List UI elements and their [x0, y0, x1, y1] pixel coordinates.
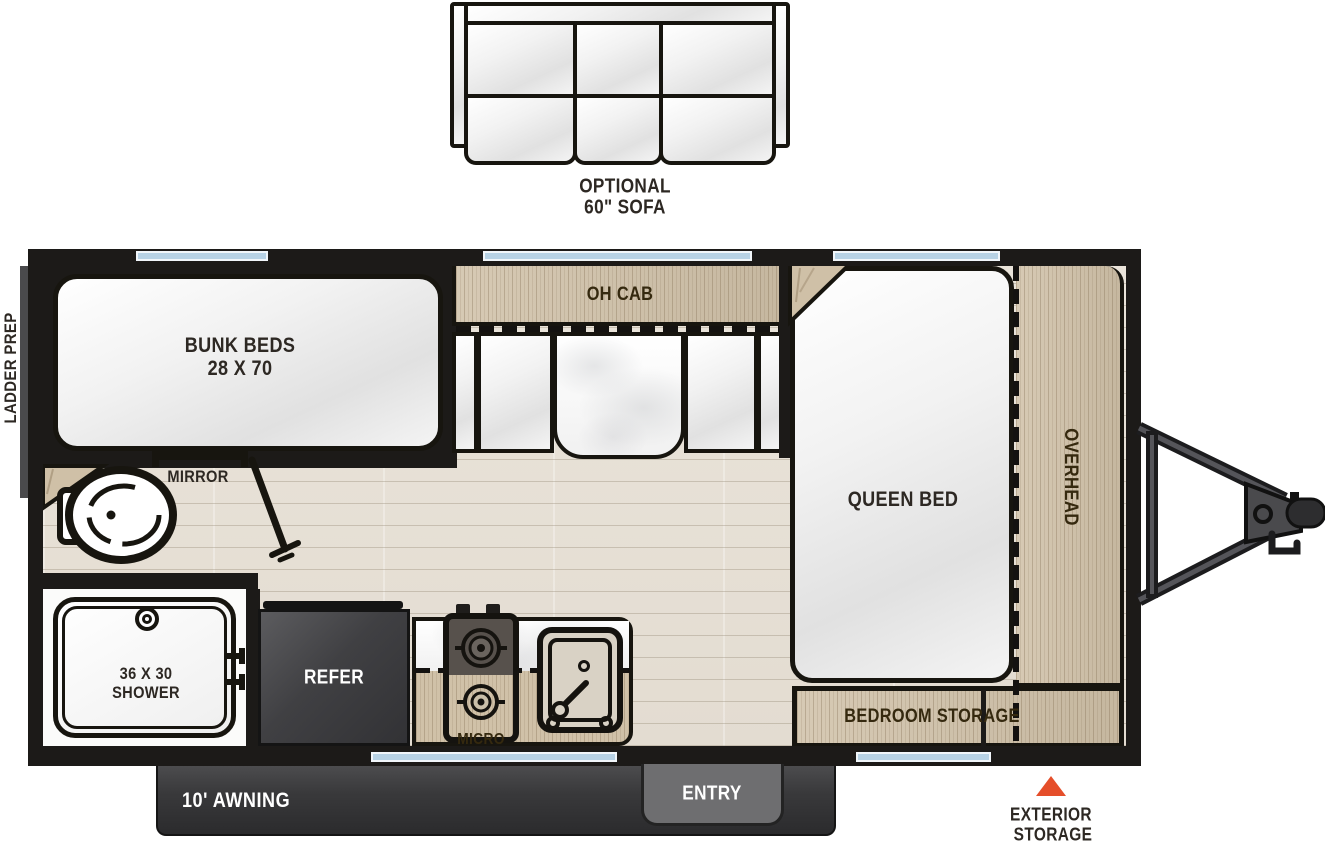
overhead-label: OVERHEAD: [1059, 428, 1081, 526]
bedroom-storage-label: BEDROOM STORAGE: [844, 706, 1020, 728]
queen-bed-label: QUEEN BED: [848, 488, 958, 512]
sofa: [450, 2, 790, 165]
bed-corner-shelf: [788, 262, 854, 326]
ladder-prep-label: LADDER PREP: [1, 312, 21, 423]
exterior-storage-label-line1: EXTERIOR: [1010, 805, 1092, 826]
bed-slide-dashline: [1013, 266, 1019, 746]
sofa-back-cushion: [573, 21, 663, 98]
hitch-frame: [1135, 395, 1325, 610]
mirror-label: MIRROR: [167, 467, 228, 487]
bunk-label-line1: BUNK BEDS: [185, 334, 295, 358]
window: [833, 251, 1000, 261]
toilet-icon: [55, 462, 180, 567]
sofa-back-cushion: [659, 21, 776, 98]
mirror-bar: [152, 450, 248, 460]
sofa-label-line1: OPTIONAL: [579, 176, 671, 199]
floorplan-canvas: LADDER PREP OPTIONAL 60" SOFA BUNK BEDS …: [0, 0, 1325, 845]
exterior-storage-label-line2: STORAGE: [1014, 825, 1093, 845]
dinette-table: [553, 332, 685, 459]
shower-faucet-icon: [222, 646, 258, 694]
exterior-storage-marker: [1034, 774, 1068, 798]
dinette-bench-seat: [477, 332, 554, 453]
sofa-seat-cushion: [659, 94, 776, 165]
bunk-label-line2: 28 X 70: [208, 357, 273, 381]
shower-drain-icon: [132, 604, 162, 634]
entry-label: ENTRY: [682, 783, 741, 806]
bathroom-wall: [43, 573, 258, 589]
dinette-bench-back: [452, 332, 478, 453]
sink-icon: [536, 626, 626, 736]
wall-left: [28, 249, 43, 766]
queen-bed: [790, 266, 1014, 683]
sofa-seat-cushion: [464, 94, 577, 165]
bathroom-door: [240, 452, 310, 564]
sofa-label-line2: 60" SOFA: [584, 197, 666, 220]
window: [136, 251, 268, 261]
awning-label: 10' AWNING: [182, 789, 290, 813]
refer-label: REFER: [304, 667, 364, 690]
sofa-back-cushion: [464, 21, 577, 98]
oh-cab-label: OH CAB: [587, 284, 654, 306]
micro-label: MICRO: [457, 731, 505, 749]
window: [483, 251, 752, 261]
shower-label-line2: SHOWER: [112, 683, 180, 703]
window: [856, 752, 991, 762]
dinette-bench-seat: [684, 332, 758, 453]
shower-label-line1: 36 X 30: [120, 664, 173, 684]
stove-icon: [442, 600, 520, 748]
window: [371, 752, 617, 762]
sofa-seat-cushion: [573, 94, 663, 165]
refrigerator-hinge-bar: [263, 601, 403, 609]
